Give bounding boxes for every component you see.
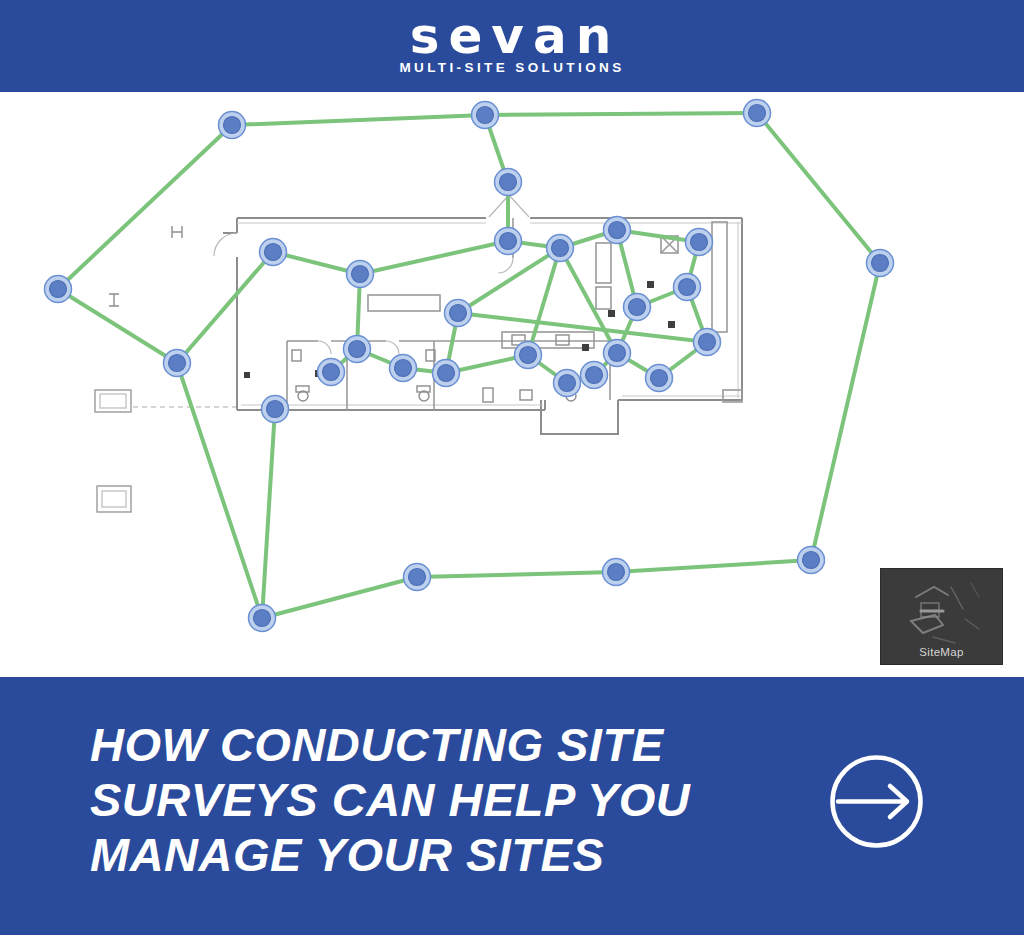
- survey-path-segment: [262, 409, 275, 618]
- arrow-right-icon: [828, 753, 925, 850]
- survey-node-core: [267, 401, 284, 418]
- survey-path-segment: [360, 241, 508, 274]
- survey-path-segment: [177, 363, 262, 618]
- survey-path-segment: [811, 263, 880, 560]
- site-survey-graphic: sevan MULTI-SITE SOLUTIONS: [0, 0, 1024, 935]
- survey-node-core: [395, 360, 412, 377]
- headline: HOW CONDUCTING SITE SURVEYS CAN HELP YOU…: [90, 717, 690, 882]
- survey-path-segment: [616, 560, 811, 572]
- survey-node-core: [265, 244, 282, 261]
- logo-wordmark: sevan: [405, 17, 624, 55]
- survey-node-core: [352, 266, 369, 283]
- headline-line: SURVEYS CAN HELP YOU: [90, 773, 690, 826]
- survey-node-core: [699, 334, 716, 351]
- survey-node-core: [409, 569, 426, 586]
- survey-node-core: [323, 364, 340, 381]
- survey-node-core: [651, 370, 668, 387]
- survey-node-core: [500, 233, 517, 250]
- floor-plan-map: SiteMap: [0, 92, 1024, 677]
- survey-map-canvas: [0, 92, 1024, 677]
- survey-node-core: [450, 305, 467, 322]
- survey-node-core: [552, 240, 569, 257]
- headline-line: HOW CONDUCTING SITE: [90, 718, 663, 771]
- survey-path-segment: [58, 125, 232, 289]
- survey-node-core: [608, 564, 625, 581]
- survey-path-segment: [485, 113, 757, 115]
- survey-node-core: [872, 255, 889, 272]
- survey-path-segment: [58, 289, 177, 363]
- survey-node-core: [254, 610, 271, 627]
- survey-node-core: [520, 347, 537, 364]
- arrow-button[interactable]: [828, 753, 925, 850]
- survey-path-segment: [177, 252, 273, 363]
- headline-line: MANAGE YOUR SITES: [90, 828, 604, 881]
- survey-node-core: [679, 279, 696, 296]
- sevan-logo: sevan MULTI-SITE SOLUTIONS: [399, 17, 624, 75]
- survey-node-core: [609, 222, 626, 239]
- survey-node-core: [438, 365, 455, 382]
- survey-path-segment: [757, 113, 880, 263]
- survey-node-core: [629, 299, 646, 316]
- survey-node-core: [349, 341, 366, 358]
- sitemap-thumbnail[interactable]: SiteMap: [880, 568, 1003, 665]
- survey-node-core: [586, 367, 603, 384]
- survey-node-core: [500, 174, 517, 191]
- survey-node-core: [169, 355, 186, 372]
- survey-node-core: [477, 107, 494, 124]
- survey-node-core: [50, 281, 67, 298]
- sitemap-label: SiteMap: [881, 646, 1002, 658]
- survey-network: [45, 100, 894, 632]
- survey-node-core: [609, 345, 626, 362]
- logo-tagline: MULTI-SITE SOLUTIONS: [399, 60, 624, 75]
- floor-plan-drawing: [95, 195, 742, 512]
- survey-node-core: [749, 105, 766, 122]
- survey-node-core: [559, 375, 576, 392]
- survey-node-core: [691, 234, 708, 251]
- survey-node-core: [803, 552, 820, 569]
- header-bar: sevan MULTI-SITE SOLUTIONS: [0, 0, 1024, 92]
- survey-node-core: [224, 117, 241, 134]
- survey-path-segment: [232, 115, 485, 125]
- survey-path-segment: [262, 577, 417, 618]
- survey-path-segment: [417, 572, 616, 577]
